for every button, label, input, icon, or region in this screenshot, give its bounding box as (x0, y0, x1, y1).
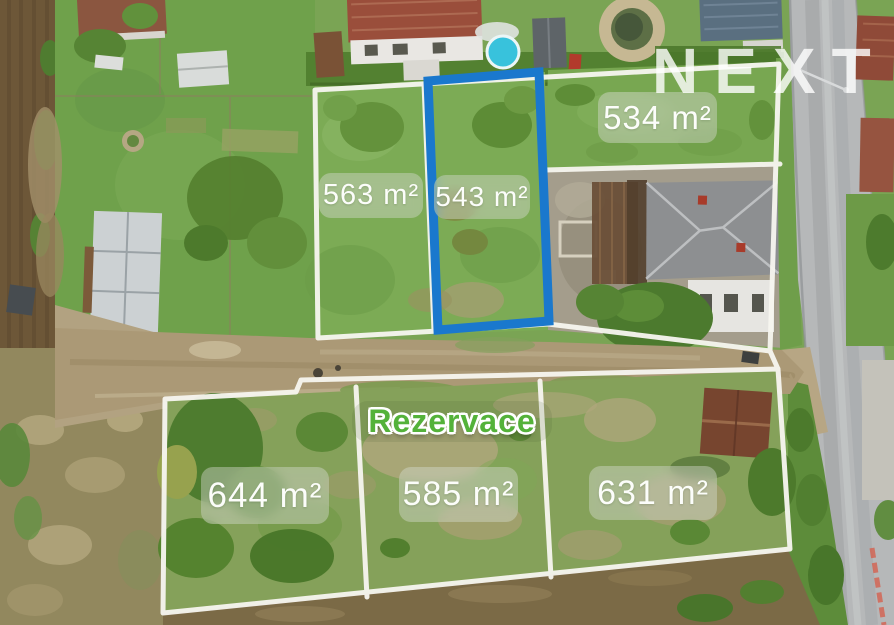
house-lower-right (700, 388, 772, 459)
plot-area-label-563: 563 m² (319, 173, 423, 218)
plot-area-label-631: 631 m² (589, 466, 717, 520)
plot-area-label-644: 644 m² (201, 467, 329, 524)
pool (487, 36, 519, 68)
reservation-label: Rezervace (352, 401, 552, 442)
plot-area-label-543: 543 m² (434, 175, 530, 219)
house-gray-roof (643, 176, 782, 285)
brand-watermark: NEXT (652, 34, 887, 108)
aerial-listing-photo: 563 m² 543 m² 534 m² 644 m² 585 m² 631 m… (0, 0, 894, 625)
white-shed (177, 50, 229, 87)
plot-area-label-585: 585 m² (399, 467, 518, 522)
gray-shed (532, 17, 567, 68)
